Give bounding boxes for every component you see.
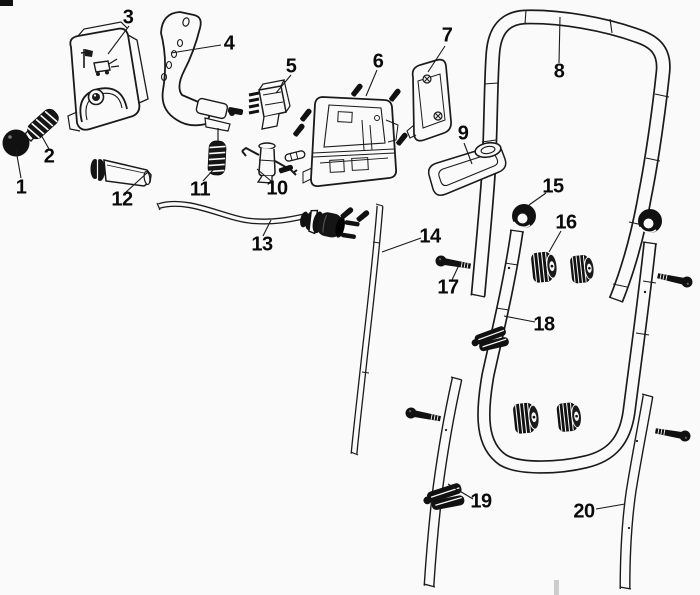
leader-line-18	[504, 316, 535, 322]
part-label-12: 12	[111, 189, 132, 212]
part-label-17: 17	[437, 277, 458, 300]
part-label-16: 16	[555, 212, 576, 235]
leader-line-20	[596, 504, 625, 509]
part-bushing-sleeve	[91, 159, 152, 186]
part-lower-left-tube	[424, 377, 462, 587]
part-label-20: 20	[573, 501, 594, 524]
diagram-art	[0, 0, 700, 595]
part-label-18: 18	[533, 314, 554, 337]
leader-line-14	[382, 238, 421, 252]
part-label-6: 6	[373, 51, 384, 74]
part-label-11: 11	[190, 179, 210, 202]
part-label-9: 9	[458, 123, 469, 146]
part-switchbox-base	[278, 83, 408, 223]
scan-artifact-corner-mark	[0, 0, 13, 6]
part-switchbox-cover	[68, 22, 148, 131]
terminal-capsule	[284, 150, 305, 162]
part-label-2: 2	[44, 146, 55, 169]
part-label-5: 5	[286, 56, 297, 79]
part-label-13: 13	[251, 234, 272, 257]
part-micro-switch	[249, 80, 290, 129]
scan-artifact-bar	[554, 580, 559, 595]
leader-line-6	[366, 70, 377, 96]
part-label-7: 7	[442, 25, 453, 48]
part-label-15: 15	[542, 176, 563, 199]
part-label-19: 19	[470, 491, 491, 514]
part-label-8: 8	[554, 61, 565, 84]
part-switch-lever	[161, 12, 243, 141]
part-lever-spring	[208, 141, 227, 176]
part-label-4: 4	[224, 33, 235, 56]
part-label-10: 10	[266, 178, 287, 201]
part-label-3: 3	[123, 7, 134, 30]
part-switchbox-side-cover	[407, 60, 451, 141]
part-label-1: 1	[16, 177, 27, 200]
part-wing-knobs	[512, 251, 595, 434]
part-label-14: 14	[419, 226, 440, 249]
diagram-canvas: 1 2 3 4 5 6 7 8 9 10 11 12 13 14 15 16 1…	[0, 0, 700, 595]
part-control-rod	[351, 204, 383, 455]
